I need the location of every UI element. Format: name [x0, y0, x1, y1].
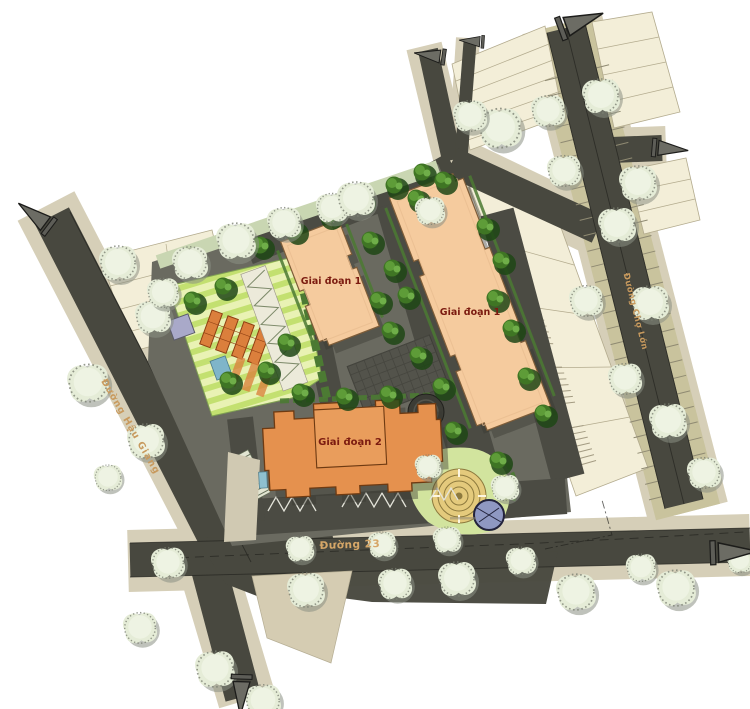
- tree-icon: [556, 574, 599, 615]
- building-phase2-label: Giai đoạn 2: [318, 437, 382, 448]
- street-label-23: Đường 23: [319, 538, 380, 552]
- entrance-walkway: [224, 452, 260, 542]
- building-phase1-a-label: Giai đoạn 1: [301, 276, 361, 287]
- tree-icon: [195, 651, 238, 692]
- site-plan-page: Giai đoạn 1 Giai đoạn 1 Giai đoạn 2 Đườn…: [0, 0, 750, 709]
- sidewalk-fine-print: [450, 517, 476, 520]
- site-plan-map: Giai đoạn 1 Giai đoạn 1 Giai đoạn 2 Đườn…: [0, 0, 750, 709]
- tree-icon: [626, 554, 659, 585]
- tree-icon: [656, 570, 699, 611]
- building-phase1-b-label: Giai đoạn 1: [440, 307, 500, 318]
- tree-icon: [123, 613, 160, 648]
- tree-icon: [94, 465, 125, 494]
- tree-icon: [245, 685, 284, 709]
- round-canopy: [474, 500, 504, 530]
- phase2-pool: [259, 472, 268, 488]
